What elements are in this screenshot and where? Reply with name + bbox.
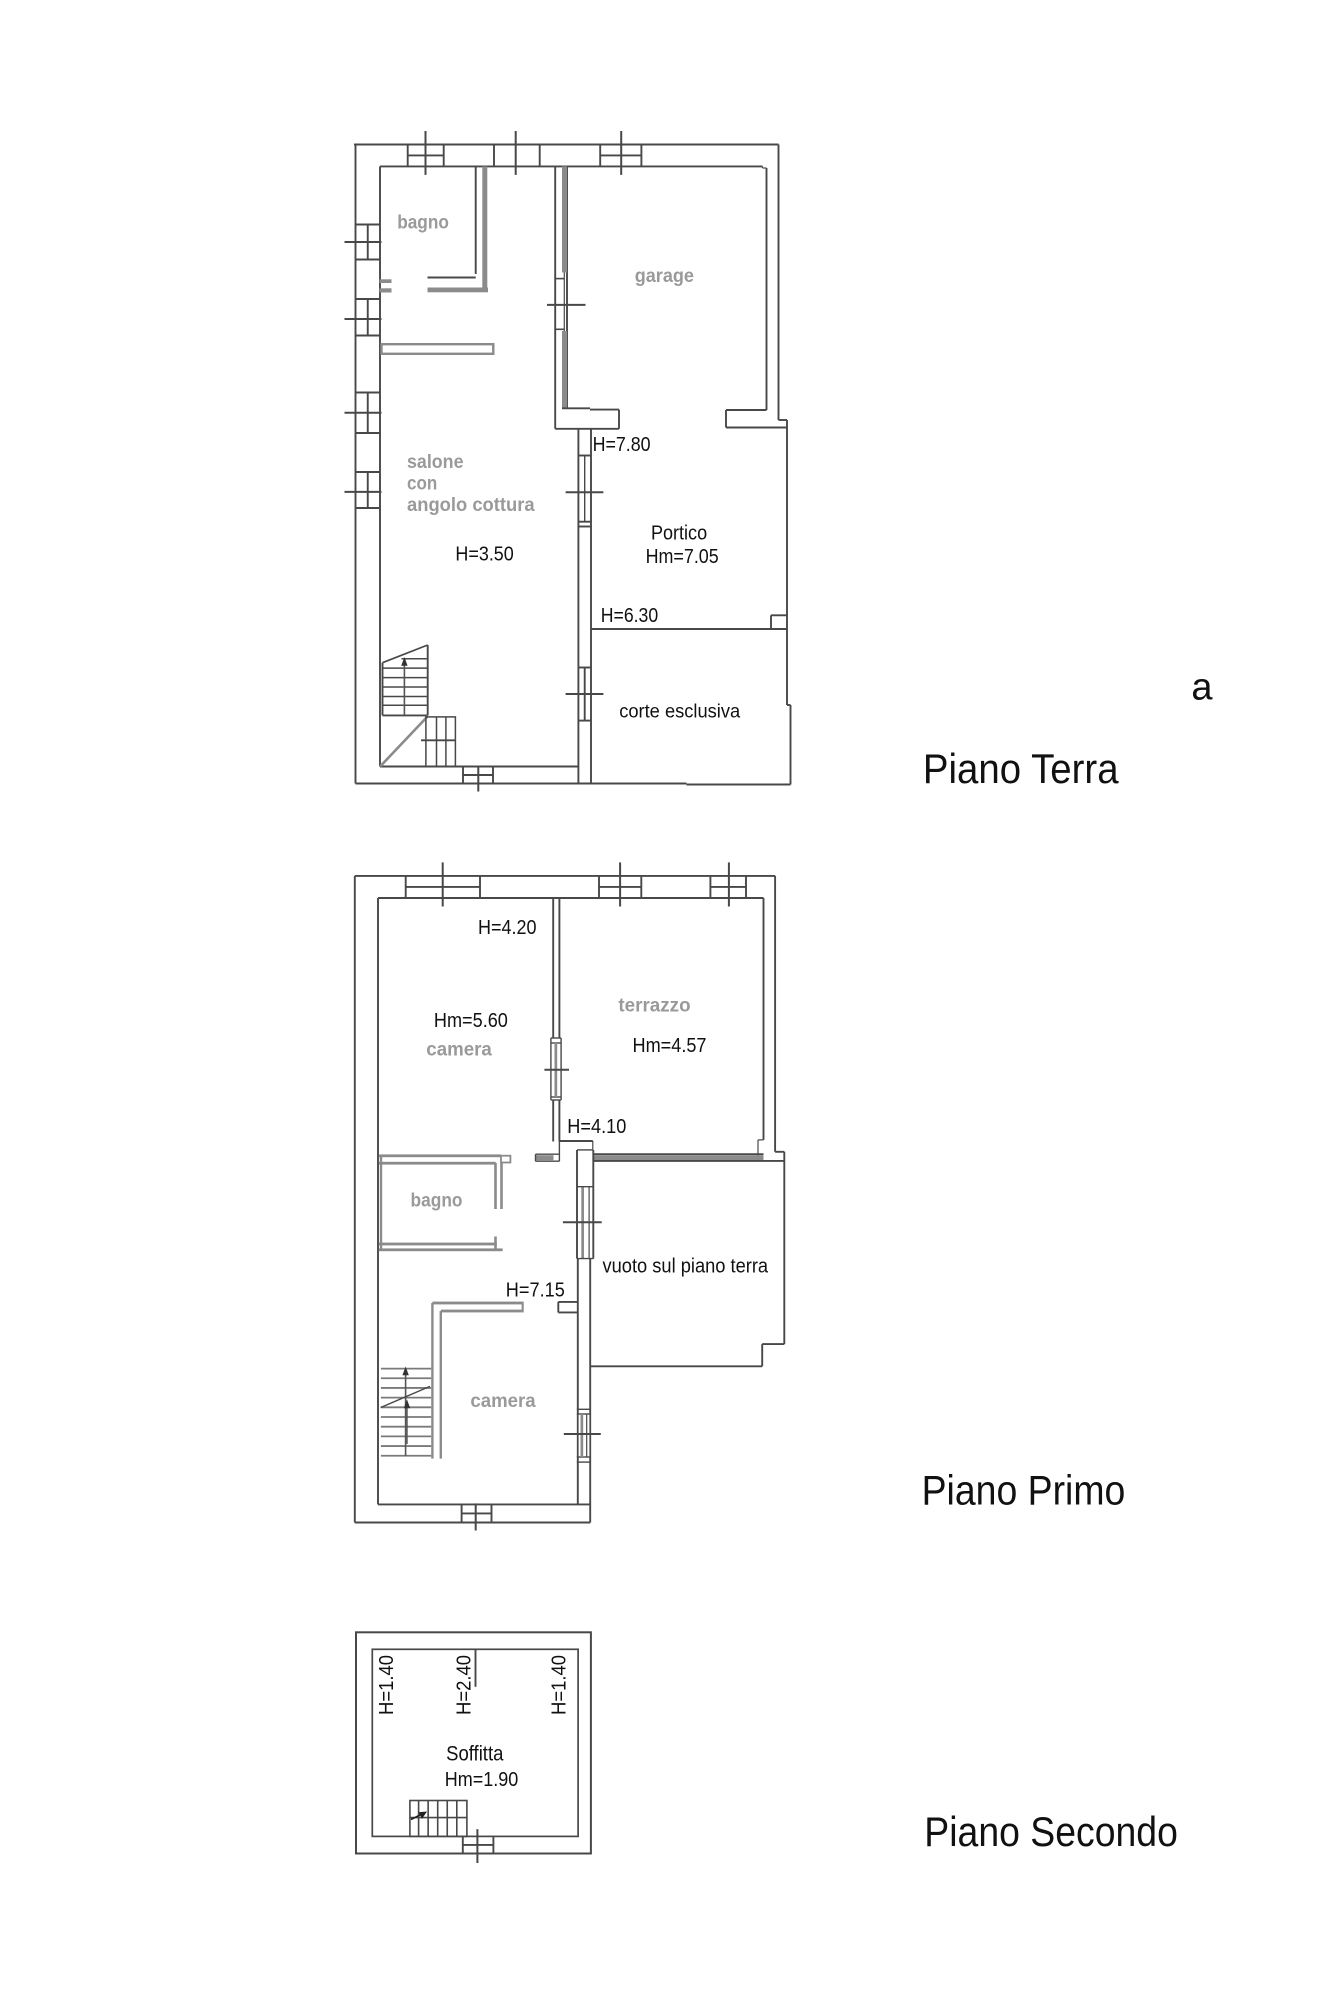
svg-text:H=2.40: H=2.40 (454, 1655, 476, 1715)
svg-text:Hm=5.60: Hm=5.60 (434, 1010, 508, 1032)
svg-text:Hm=4.57: Hm=4.57 (633, 1035, 707, 1057)
svg-text:angolo cottura: angolo cottura (407, 495, 535, 516)
svg-text:H=1.40: H=1.40 (549, 1655, 571, 1715)
svg-text:bagno: bagno (397, 213, 449, 234)
svg-text:H=7.80: H=7.80 (593, 434, 651, 456)
svg-text:Hm=7.05: Hm=7.05 (646, 546, 719, 568)
svg-text:H=1.40: H=1.40 (376, 1655, 398, 1715)
svg-text:H=4.20: H=4.20 (478, 917, 537, 939)
svg-text:Piano Primo: Piano Primo (922, 1467, 1126, 1514)
svg-text:camera: camera (426, 1040, 492, 1061)
svg-text:Soffitta: Soffitta (446, 1742, 503, 1766)
svg-text:H=3.50: H=3.50 (455, 543, 513, 565)
svg-text:Piano Secondo: Piano Secondo (924, 1808, 1178, 1855)
svg-text:vuoto sul piano terra: vuoto sul piano terra (603, 1256, 769, 1278)
svg-text:H=6.30: H=6.30 (601, 605, 658, 627)
svg-text:H=7.15: H=7.15 (506, 1280, 565, 1302)
svg-text:Hm=1.90: Hm=1.90 (445, 1769, 519, 1791)
svg-text:Portico: Portico (651, 523, 707, 545)
svg-text:garage: garage (635, 266, 694, 287)
svg-text:Piano Terra: Piano Terra (923, 745, 1120, 792)
svg-text:terrazzo: terrazzo (618, 996, 690, 1017)
svg-text:bagno: bagno (411, 1191, 463, 1212)
svg-text:a: a (1191, 666, 1213, 708)
svg-text:H=4.10: H=4.10 (567, 1116, 626, 1138)
svg-text:con: con (407, 474, 437, 495)
svg-text:corte esclusiva: corte esclusiva (619, 701, 740, 723)
svg-text:salone: salone (407, 452, 464, 473)
svg-text:camera: camera (470, 1391, 536, 1412)
